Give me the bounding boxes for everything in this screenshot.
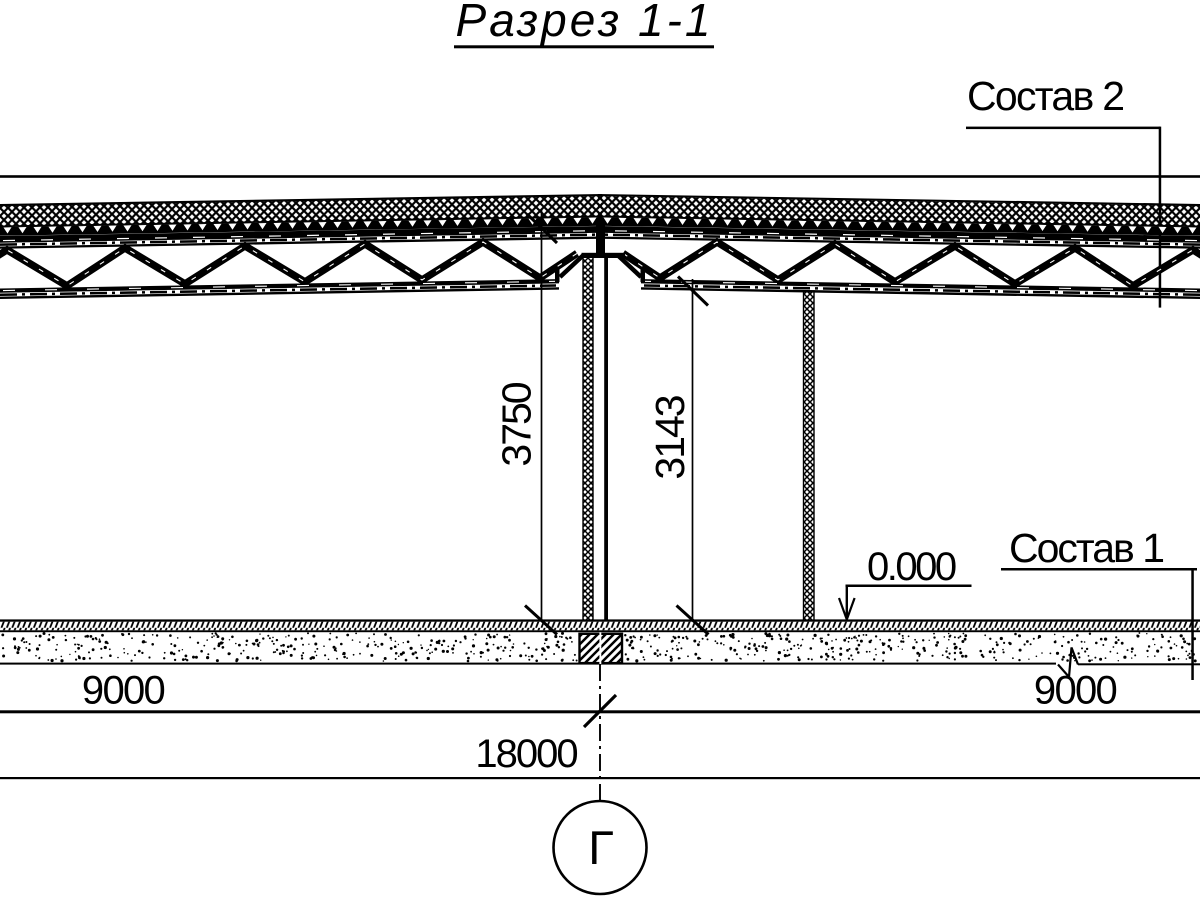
svg-text:Состав 2: Состав 2: [967, 73, 1123, 119]
svg-text:Г: Г: [588, 821, 613, 874]
svg-text:3750: 3750: [494, 382, 540, 466]
svg-text:Состав 1: Состав 1: [1009, 525, 1163, 571]
svg-text:Разрез 1-1: Разрез 1-1: [456, 0, 714, 46]
svg-text:3143: 3143: [647, 396, 693, 479]
svg-text:9000: 9000: [82, 669, 165, 713]
svg-text:9000: 9000: [1034, 669, 1117, 713]
svg-text:0.000: 0.000: [867, 545, 956, 589]
svg-text:18000: 18000: [475, 732, 577, 776]
